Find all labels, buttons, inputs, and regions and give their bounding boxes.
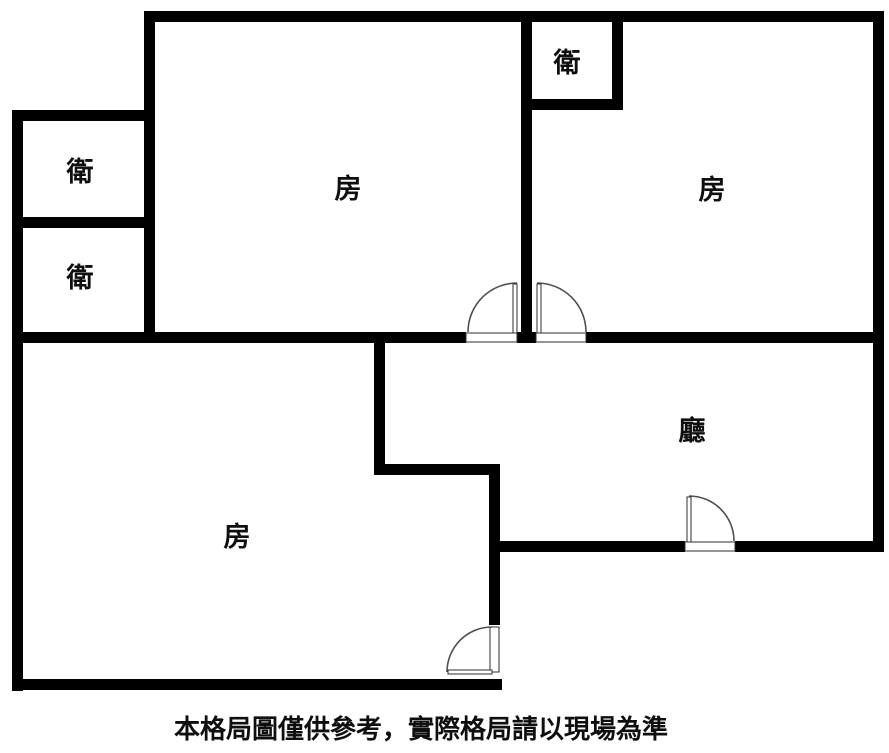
door-threshold <box>536 333 586 342</box>
door-leaf <box>448 670 492 674</box>
door-leaf <box>513 284 517 333</box>
wall-step-horizontal <box>374 464 500 475</box>
door-bedroom-bottom-left <box>447 627 499 674</box>
wall-bathroom-top-right-bottom <box>521 99 623 110</box>
door-bedroom-top-right <box>536 283 586 342</box>
door-leaf <box>687 497 691 542</box>
wall-living-bottom-left-segment <box>495 541 685 552</box>
door-swing-arc <box>537 283 586 332</box>
door-leaf <box>537 284 541 333</box>
wall-step-vertical <box>374 332 385 475</box>
wall-central-vertical <box>521 11 532 343</box>
wall-bedroom-top-middle-left <box>144 11 155 343</box>
room-label-bedroom-top-right: 房 <box>699 175 726 205</box>
door-living-room-entry <box>685 496 735 551</box>
door-swing-arc <box>447 627 492 672</box>
door-threshold <box>466 333 517 342</box>
wall-middle-right-segment <box>586 332 873 343</box>
wall-middle-left-segment <box>12 332 466 343</box>
door-threshold <box>490 627 499 672</box>
wall-outer-top <box>145 11 884 22</box>
room-label-bathroom-upper-left: 衛 <box>66 156 94 187</box>
floor-plan-canvas: 衛 衛 衛 房 房 房 廳 本格局圖僅供參考，實際格局請以現場為準 <box>0 0 889 753</box>
room-label-bathroom-lower-left: 衛 <box>66 262 94 293</box>
door-bedroom-top-middle <box>466 283 517 342</box>
door-swing-arc <box>689 496 734 541</box>
room-label-living-room: 廳 <box>679 415 706 446</box>
disclaimer-caption: 本格局圖僅供參考，實際格局請以現場為準 <box>174 714 668 744</box>
room-label-bedroom-top-middle: 房 <box>335 174 362 204</box>
wall-bathroom-top-right-right <box>612 11 623 110</box>
wall-outer-bottom <box>12 679 502 690</box>
wall-outer-right <box>873 11 884 552</box>
room-label-bedroom-bottom-left: 房 <box>224 522 251 552</box>
floor-plan: 衛 衛 衛 房 房 房 廳 本格局圖僅供參考，實際格局請以現場為準 <box>0 0 889 753</box>
wall-bathroom-left-divider <box>12 217 155 228</box>
door-threshold <box>685 542 735 551</box>
wall-bathroom-left-top <box>12 110 155 121</box>
room-label-bathroom-top-right: 衛 <box>553 47 581 78</box>
wall-outer-left <box>12 110 23 691</box>
wall-living-bottom-right-segment <box>735 541 873 552</box>
wall-middle-center-stub <box>517 332 536 343</box>
walls <box>12 11 884 691</box>
door-swing-arc <box>468 283 517 332</box>
